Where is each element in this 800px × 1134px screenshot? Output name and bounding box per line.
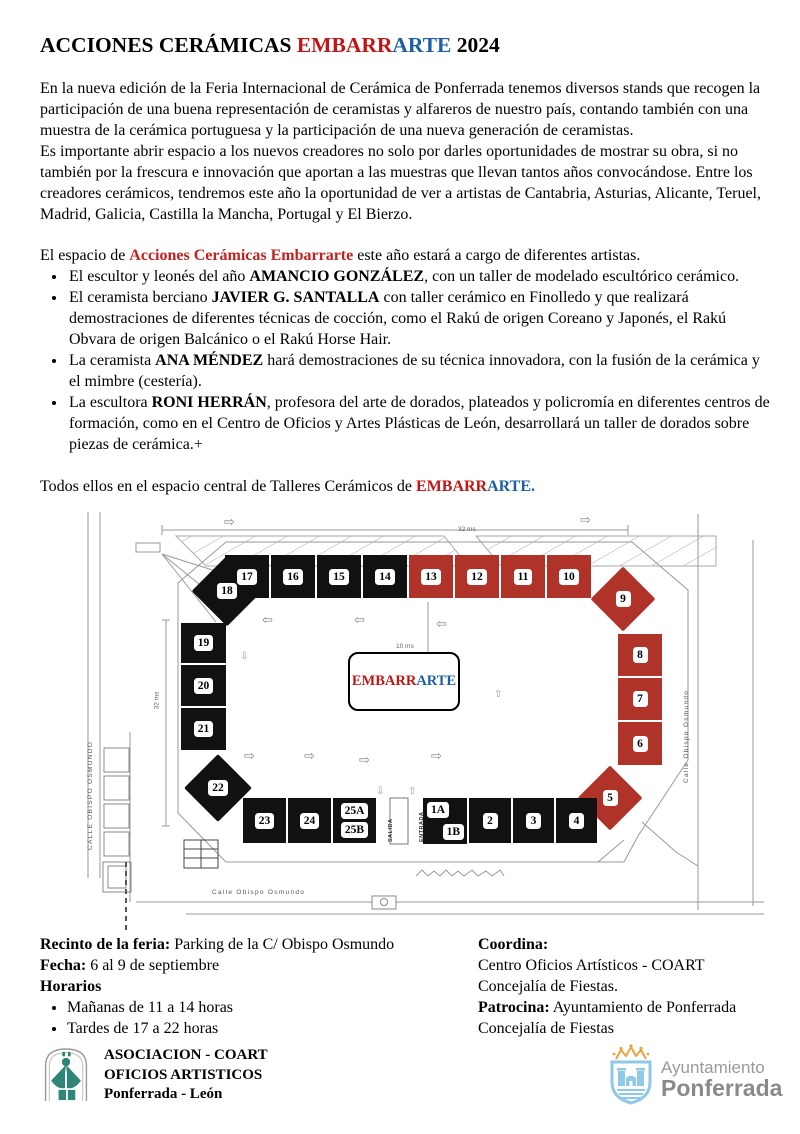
artist-post: , con un taller de modelado escultórico …: [424, 268, 739, 285]
map-stand-8: 8: [618, 634, 662, 676]
horarios-list: Mañanas de 11 a 14 horas Tardes de 17 a …: [40, 997, 478, 1039]
stand-number-label: 7: [633, 691, 648, 707]
map-stand-2: 2: [469, 798, 511, 843]
stand-number-label: 23: [255, 813, 275, 829]
coart-figure: [51, 1052, 81, 1100]
title-year: 2024: [451, 33, 499, 57]
horario-item: Tardes de 17 a 22 horas: [67, 1018, 478, 1039]
stand-number-label: 17: [237, 569, 257, 585]
espacio-post: este año estará a cargo de diferentes ar…: [353, 247, 640, 264]
stand-number-label: 18: [217, 583, 237, 599]
map-stand-19: 19: [181, 623, 226, 663]
stand-number-label: 6: [633, 736, 648, 752]
center-label-arte: ARTE: [416, 671, 456, 692]
coordina-label: Coordina:: [478, 936, 548, 953]
map-stand-20: 20: [181, 665, 226, 706]
stand-number-label: 20: [194, 678, 214, 694]
map-stand-16: 16: [271, 555, 315, 598]
artist-item: La ceramista ANA MÉNDEZ hará demostracio…: [67, 350, 770, 392]
artist-name: JAVIER G. SANTALLA: [212, 289, 380, 306]
artist-name: RONI HERRÁN: [152, 394, 267, 411]
artist-name: ANA MÉNDEZ: [155, 352, 263, 369]
page-title: ACCIONES CERÁMICAS EMBARRARTE 2024: [40, 32, 770, 58]
coart-logo: ASOCIACION - COART OFICIOS ARTISTICOS Po…: [40, 1044, 268, 1106]
artist-item: La escultora RONI HERRÁN, profesora del …: [67, 392, 770, 455]
event-details: Recinto de la feria: Parking de la C/ Ob…: [40, 934, 770, 1039]
coart-line2: OFICIOS ARTISTICOS: [104, 1066, 268, 1086]
street-name-bottom: Calle Obispo Osmundo: [212, 882, 305, 903]
artist-item: El escultor y leonés del año AMANCIO GON…: [67, 266, 770, 287]
map-stand-14: 14: [363, 555, 407, 598]
stand-number-label: 25B: [341, 822, 368, 838]
todos-pre: Todos ellos en el espacio central de Tal…: [40, 478, 416, 495]
details-left-column: Recinto de la feria: Parking de la C/ Ob…: [40, 934, 478, 1039]
recinto-label: Recinto de la feria:: [40, 936, 170, 953]
street-name-left: CALLE OBISPO OSMUNDO: [80, 670, 101, 850]
stand-number-label: 15: [329, 569, 349, 585]
artist-pre: El escultor y leonés del año: [69, 268, 249, 285]
ayto-line2: Ponferrada: [661, 1075, 783, 1101]
title-embarr: EMBARR: [297, 33, 393, 57]
stand-number-label: 14: [375, 569, 395, 585]
dim-label-right: 10 ms: [396, 636, 414, 657]
fecha-line: Fecha: 6 al 9 de septiembre: [40, 955, 478, 976]
stands-layer: 1716151413121110987651819202122232425A25…: [76, 510, 766, 934]
ayuntamiento-logo: Ayuntamiento Ponferrada: [590, 1044, 786, 1112]
dim-label-left: 32 ms: [146, 692, 167, 710]
ayuntamiento-logo-svg: Ayuntamiento Ponferrada: [590, 1044, 786, 1106]
coart-line3: Ponferrada - León: [104, 1085, 268, 1105]
patrocina-line2: Concejalía de Fiestas: [478, 1018, 770, 1039]
map-stand-7: 7: [618, 678, 662, 720]
espacio-line: El espacio de Acciones Cerámicas Embarra…: [40, 245, 770, 266]
map-stand-10: 10: [547, 555, 591, 598]
coart-line1: ASOCIACION - COART: [104, 1046, 268, 1066]
title-arte: ARTE: [392, 33, 451, 57]
flyer-page: { "title":{"prefix":"ACCIONES CERÁMICAS …: [0, 0, 800, 1134]
artists-list: El escultor y leonés del año AMANCIO GON…: [40, 266, 770, 455]
map-stand-12: 12: [455, 555, 499, 598]
horario-item: Mañanas de 11 a 14 horas: [67, 997, 478, 1018]
coordina-heading: Coordina:: [478, 934, 770, 955]
stand-number-label: 21: [194, 721, 214, 737]
map-stand-13: 13: [409, 555, 453, 598]
horarios-label: Horarios: [40, 978, 101, 995]
details-right-column: Coordina: Centro Oficios Artísticos - CO…: [478, 934, 770, 1039]
artist-name: AMANCIO GONZÁLEZ: [249, 268, 424, 285]
coordina-line2: Concejalía de Fiestas.: [478, 976, 770, 997]
stand-number-label: 4: [569, 813, 584, 829]
artist-pre: La escultora: [69, 394, 152, 411]
fecha-label: Fecha:: [40, 957, 86, 974]
map-stand-15: 15: [317, 555, 361, 598]
crown-icon: [613, 1044, 650, 1059]
map-stand-4: 4: [556, 798, 597, 843]
fecha-value: 6 al 9 de septiembre: [86, 957, 219, 974]
map-stand-25A-25B: 25A25B: [333, 798, 376, 843]
map-stand-21: 21: [181, 708, 226, 750]
street-name-right: Calle Obispo Osmundo: [676, 648, 697, 783]
map-stand-6: 6: [618, 722, 662, 765]
coart-icon: [40, 1044, 92, 1106]
recinto-line: Recinto de la feria: Parking de la C/ Ob…: [40, 934, 478, 955]
map-stand-23: 23: [243, 798, 286, 843]
dim-label-top: 32 ms: [458, 519, 476, 540]
stand-number-label: 16: [283, 569, 303, 585]
map-stand-24: 24: [288, 798, 331, 843]
stand-number-label: 1B: [443, 824, 464, 840]
center-label-embarr: EMBARR: [352, 671, 416, 692]
entrada-label: ENTRADA: [412, 806, 433, 842]
embarrarte-center-label: EMBARRARTE: [348, 652, 460, 711]
patrocina-value: Ayuntamiento de Ponferrada: [550, 999, 736, 1016]
document-body: ACCIONES CERÁMICAS EMBARRARTE 2024 En la…: [40, 26, 770, 497]
intro-paragraph-2: Es importante abrir espacio a los nuevos…: [40, 141, 770, 225]
patrocina-line: Patrocina: Ayuntamiento de Ponferrada: [478, 997, 770, 1018]
stand-number-label: 25A: [341, 803, 369, 819]
shield-icon: [612, 1062, 650, 1103]
stand-number-label: 19: [194, 635, 214, 651]
todos-arte: ARTE.: [487, 478, 535, 495]
stand-number-label: 24: [300, 813, 320, 829]
stand-number-label: 8: [633, 647, 648, 663]
stand-number-label: 10: [559, 569, 579, 585]
stand-number-label: 9: [616, 591, 631, 607]
stand-number-label: 22: [208, 780, 228, 796]
stand-number-label: 2: [483, 813, 498, 829]
espacio-pre: El espacio de: [40, 247, 129, 264]
artist-pre: La ceramista: [69, 352, 155, 369]
patrocina-label: Patrocina:: [478, 999, 550, 1016]
salida-label: SALIDA: [381, 808, 402, 842]
map-stand-9: 9: [600, 576, 646, 622]
logos-row: ASOCIACION - COART OFICIOS ARTISTICOS Po…: [40, 1044, 790, 1112]
recinto-value: Parking de la C/ Obispo Osmundo: [170, 936, 394, 953]
intro-paragraph-1: En la nueva edición de la Feria Internac…: [40, 78, 770, 141]
stand-number-label: 5: [603, 790, 618, 806]
map-stand-22: 22: [194, 764, 242, 812]
map-stand-3: 3: [513, 798, 554, 843]
artist-pre: El ceramista berciano: [69, 289, 212, 306]
title-prefix: ACCIONES CERÁMICAS: [40, 33, 297, 57]
coordina-line1: Centro Oficios Artísticos - COART: [478, 955, 770, 976]
stand-number-label: 3: [526, 813, 541, 829]
espacio-highlight: Acciones Cerámicas Embarrarte: [129, 247, 353, 264]
stand-number-label: 13: [421, 569, 441, 585]
todos-line: Todos ellos en el espacio central de Tal…: [40, 476, 770, 497]
map-stand-11: 11: [501, 555, 545, 598]
todos-embarr: EMBARR: [416, 478, 487, 495]
horarios-heading: Horarios: [40, 976, 478, 997]
stand-number-label: 11: [514, 569, 533, 585]
coart-text: ASOCIACION - COART OFICIOS ARTISTICOS Po…: [104, 1044, 268, 1105]
artist-item: El ceramista berciano JAVIER G. SANTALLA…: [67, 287, 770, 350]
fair-site-plan: ⇨⇨⇦⇦⇦⇨⇨⇨⇨⇩⇧⇩⇧ 17161514131211109876518192…: [76, 510, 766, 934]
stand-number-label: 12: [467, 569, 487, 585]
